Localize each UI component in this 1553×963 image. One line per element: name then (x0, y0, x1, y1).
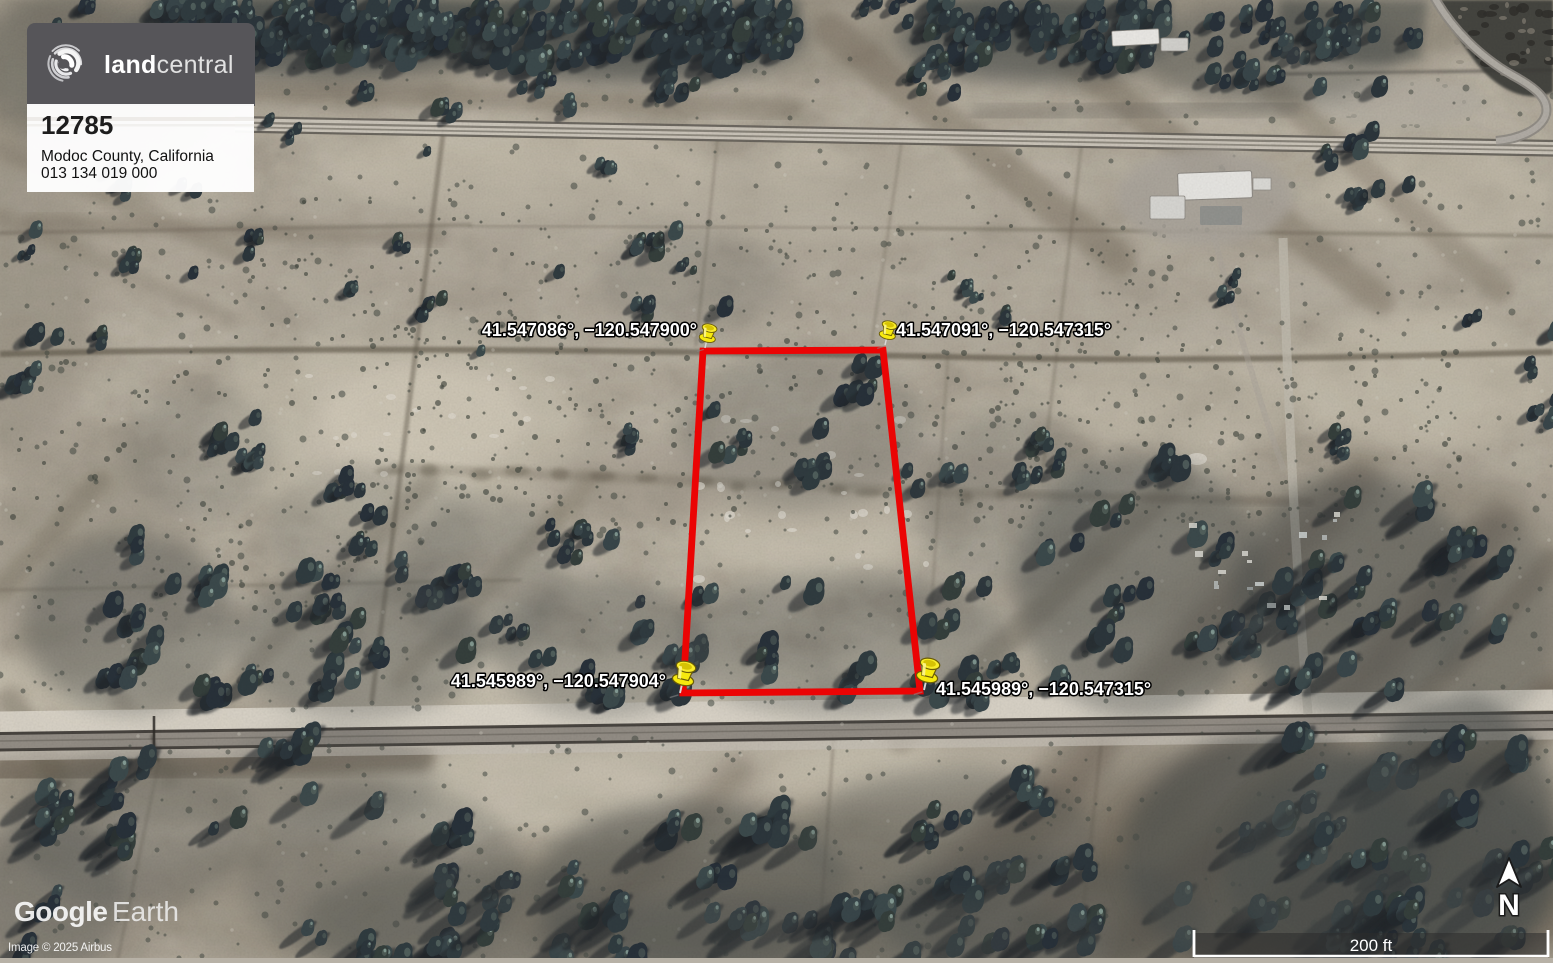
svg-text:landcentral: landcentral (104, 51, 234, 79)
svg-text:41.547091°, −120.547315°: 41.547091°, −120.547315° (896, 320, 1111, 340)
svg-text:Image © 2025 Airbus: Image © 2025 Airbus (8, 942, 112, 954)
svg-text:41.547086°, −120.547900°: 41.547086°, −120.547900° (482, 320, 697, 340)
svg-text:013 134 019 000: 013 134 019 000 (41, 165, 158, 182)
svg-text:41.545989°, −120.547904°: 41.545989°, −120.547904° (451, 671, 666, 691)
svg-text:Modoc County, California: Modoc County, California (41, 148, 214, 165)
svg-text:41.545989°, −120.547315°: 41.545989°, −120.547315° (936, 679, 1151, 699)
svg-text:200 ft: 200 ft (1350, 936, 1393, 955)
svg-text:Google: Google (14, 896, 107, 927)
svg-text:Earth: Earth (112, 896, 179, 927)
svg-text:12785: 12785 (41, 110, 113, 140)
svg-text:N: N (1498, 889, 1520, 922)
